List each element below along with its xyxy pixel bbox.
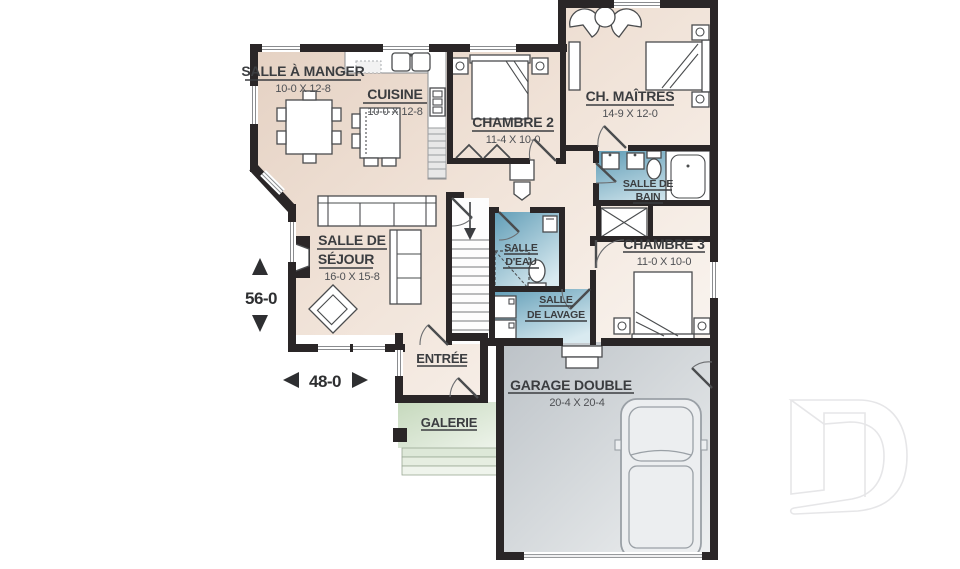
entry-label: ENTRÉE [416,351,468,366]
depth-dimension: 56-0 [245,289,277,308]
car [615,399,707,559]
bedroom2-dims: 11-4 X 10-0 [486,134,541,146]
linen-closet [601,208,647,237]
master-label: CH. MAÎTRES [586,87,675,104]
living-label-2: SÉJOUR [318,251,374,267]
bathroom-label-1: SALLE DE [623,178,674,190]
cabinet [543,216,557,232]
width-arrow-right [352,372,368,388]
bedroom3-dims: 11-0 X 10-0 [637,256,692,268]
stove [430,88,445,116]
bathtub [666,151,710,202]
kitchen-label: CUISINE [367,86,422,102]
sofa [318,196,436,226]
kitchen-dims: 10-0 X 12-8 [367,106,422,118]
drummond-logo-watermark [791,400,907,514]
garage-dims: 20-4 X 20-4 [549,397,604,409]
master-dims: 14-9 X 12-0 [602,108,657,120]
pantry [428,128,446,178]
garage-label: GARAGE DOUBLE [510,377,632,393]
window [710,262,718,298]
window [470,44,516,52]
bedroom3-label: CHAMBRE 3 [623,236,705,252]
toilet [647,151,661,179]
dining-furniture [277,91,341,163]
window [250,86,258,124]
powder-label-2: D'EAU [505,256,536,268]
powder-label-1: SALLE [504,242,538,254]
loveseat [390,230,421,304]
garage-door [524,552,702,560]
living-dims: 16-0 X 15-8 [324,271,379,283]
window [288,222,296,262]
floor-plan-page: SALLE À MANGER 10-0 X 12-8 CUISINE 10-0 … [0,0,960,569]
porch-steps [402,448,497,475]
window [353,344,385,352]
floor-plan-drawing: SALLE À MANGER 10-0 X 12-8 CUISINE 10-0 … [0,0,960,569]
depth-arrow-up [252,258,268,275]
window [262,44,300,52]
hall-closet [510,160,534,200]
width-dimension: 48-0 [309,372,341,391]
porch-label: GALERIE [421,415,478,430]
window [318,344,350,352]
depth-arrow-down [252,315,268,332]
bathroom-label-2: BAIN [636,191,661,203]
laundry-label-1: SALLE [539,294,573,306]
window [614,0,660,8]
garage-entry-steps [562,346,602,368]
window [383,44,429,52]
dining-dims: 10-0 X 12-8 [275,83,330,95]
window [395,350,403,376]
living-label-1: SALLE DE [318,232,386,248]
bedroom2-label: CHAMBRE 2 [472,114,554,130]
porch-post [393,428,407,442]
width-arrow-left [283,372,299,388]
laundry-label-2: DE LAVAGE [527,309,585,321]
dining-label: SALLE À MANGER [241,63,364,79]
